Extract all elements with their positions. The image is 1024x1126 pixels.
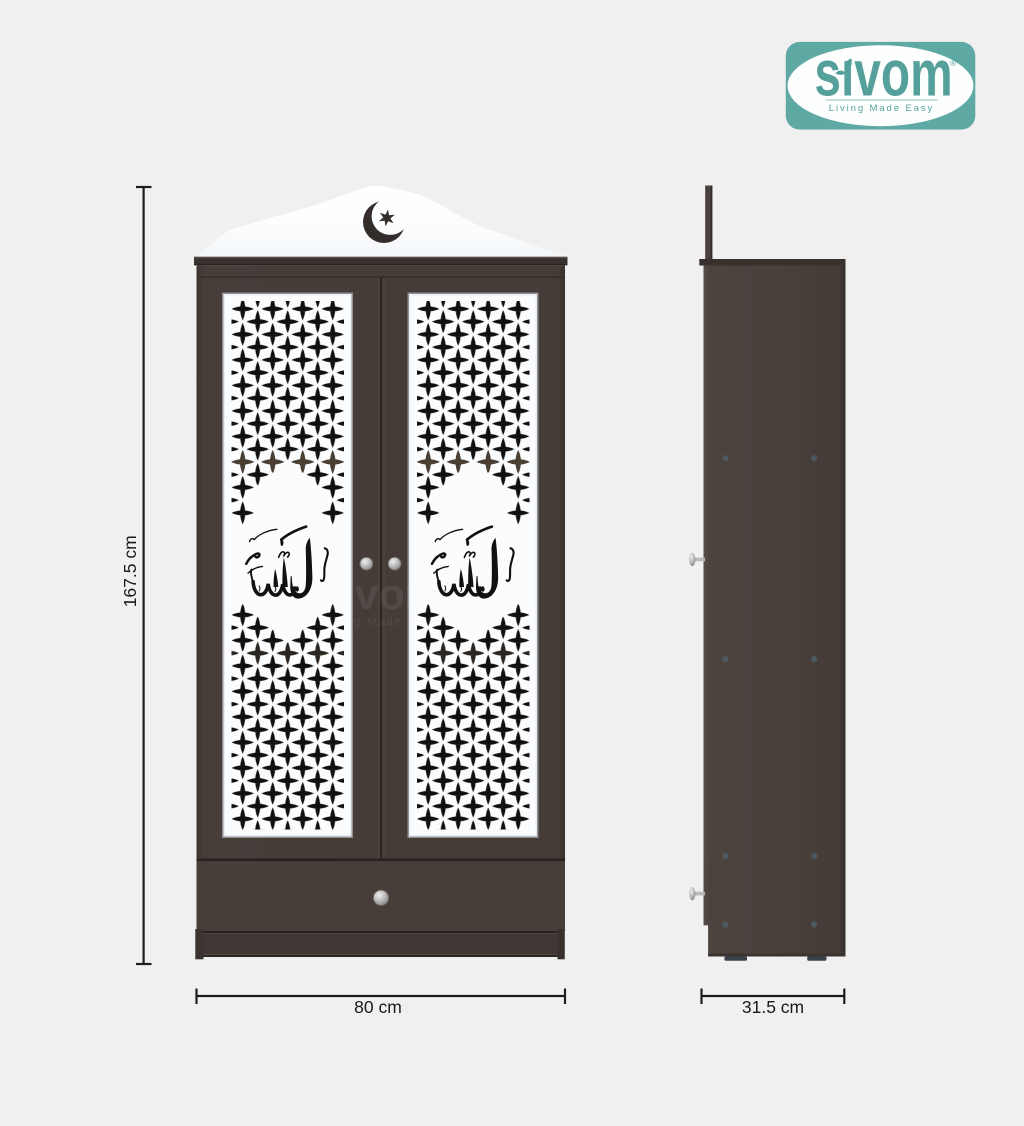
- svg-text:31.5 cm: 31.5 cm: [742, 997, 804, 1017]
- svg-text:167.5 cm: 167.5 cm: [120, 535, 140, 607]
- svg-text:sıvom: sıvom: [814, 37, 952, 110]
- svg-text:80 cm: 80 cm: [354, 997, 402, 1017]
- svg-text:sivom: sivom: [319, 571, 443, 619]
- svg-text:Living Made Easy: Living Made Easy: [322, 616, 441, 628]
- svg-text:Living Made Easy: Living Made Easy: [829, 103, 934, 114]
- svg-text:®: ®: [950, 59, 956, 68]
